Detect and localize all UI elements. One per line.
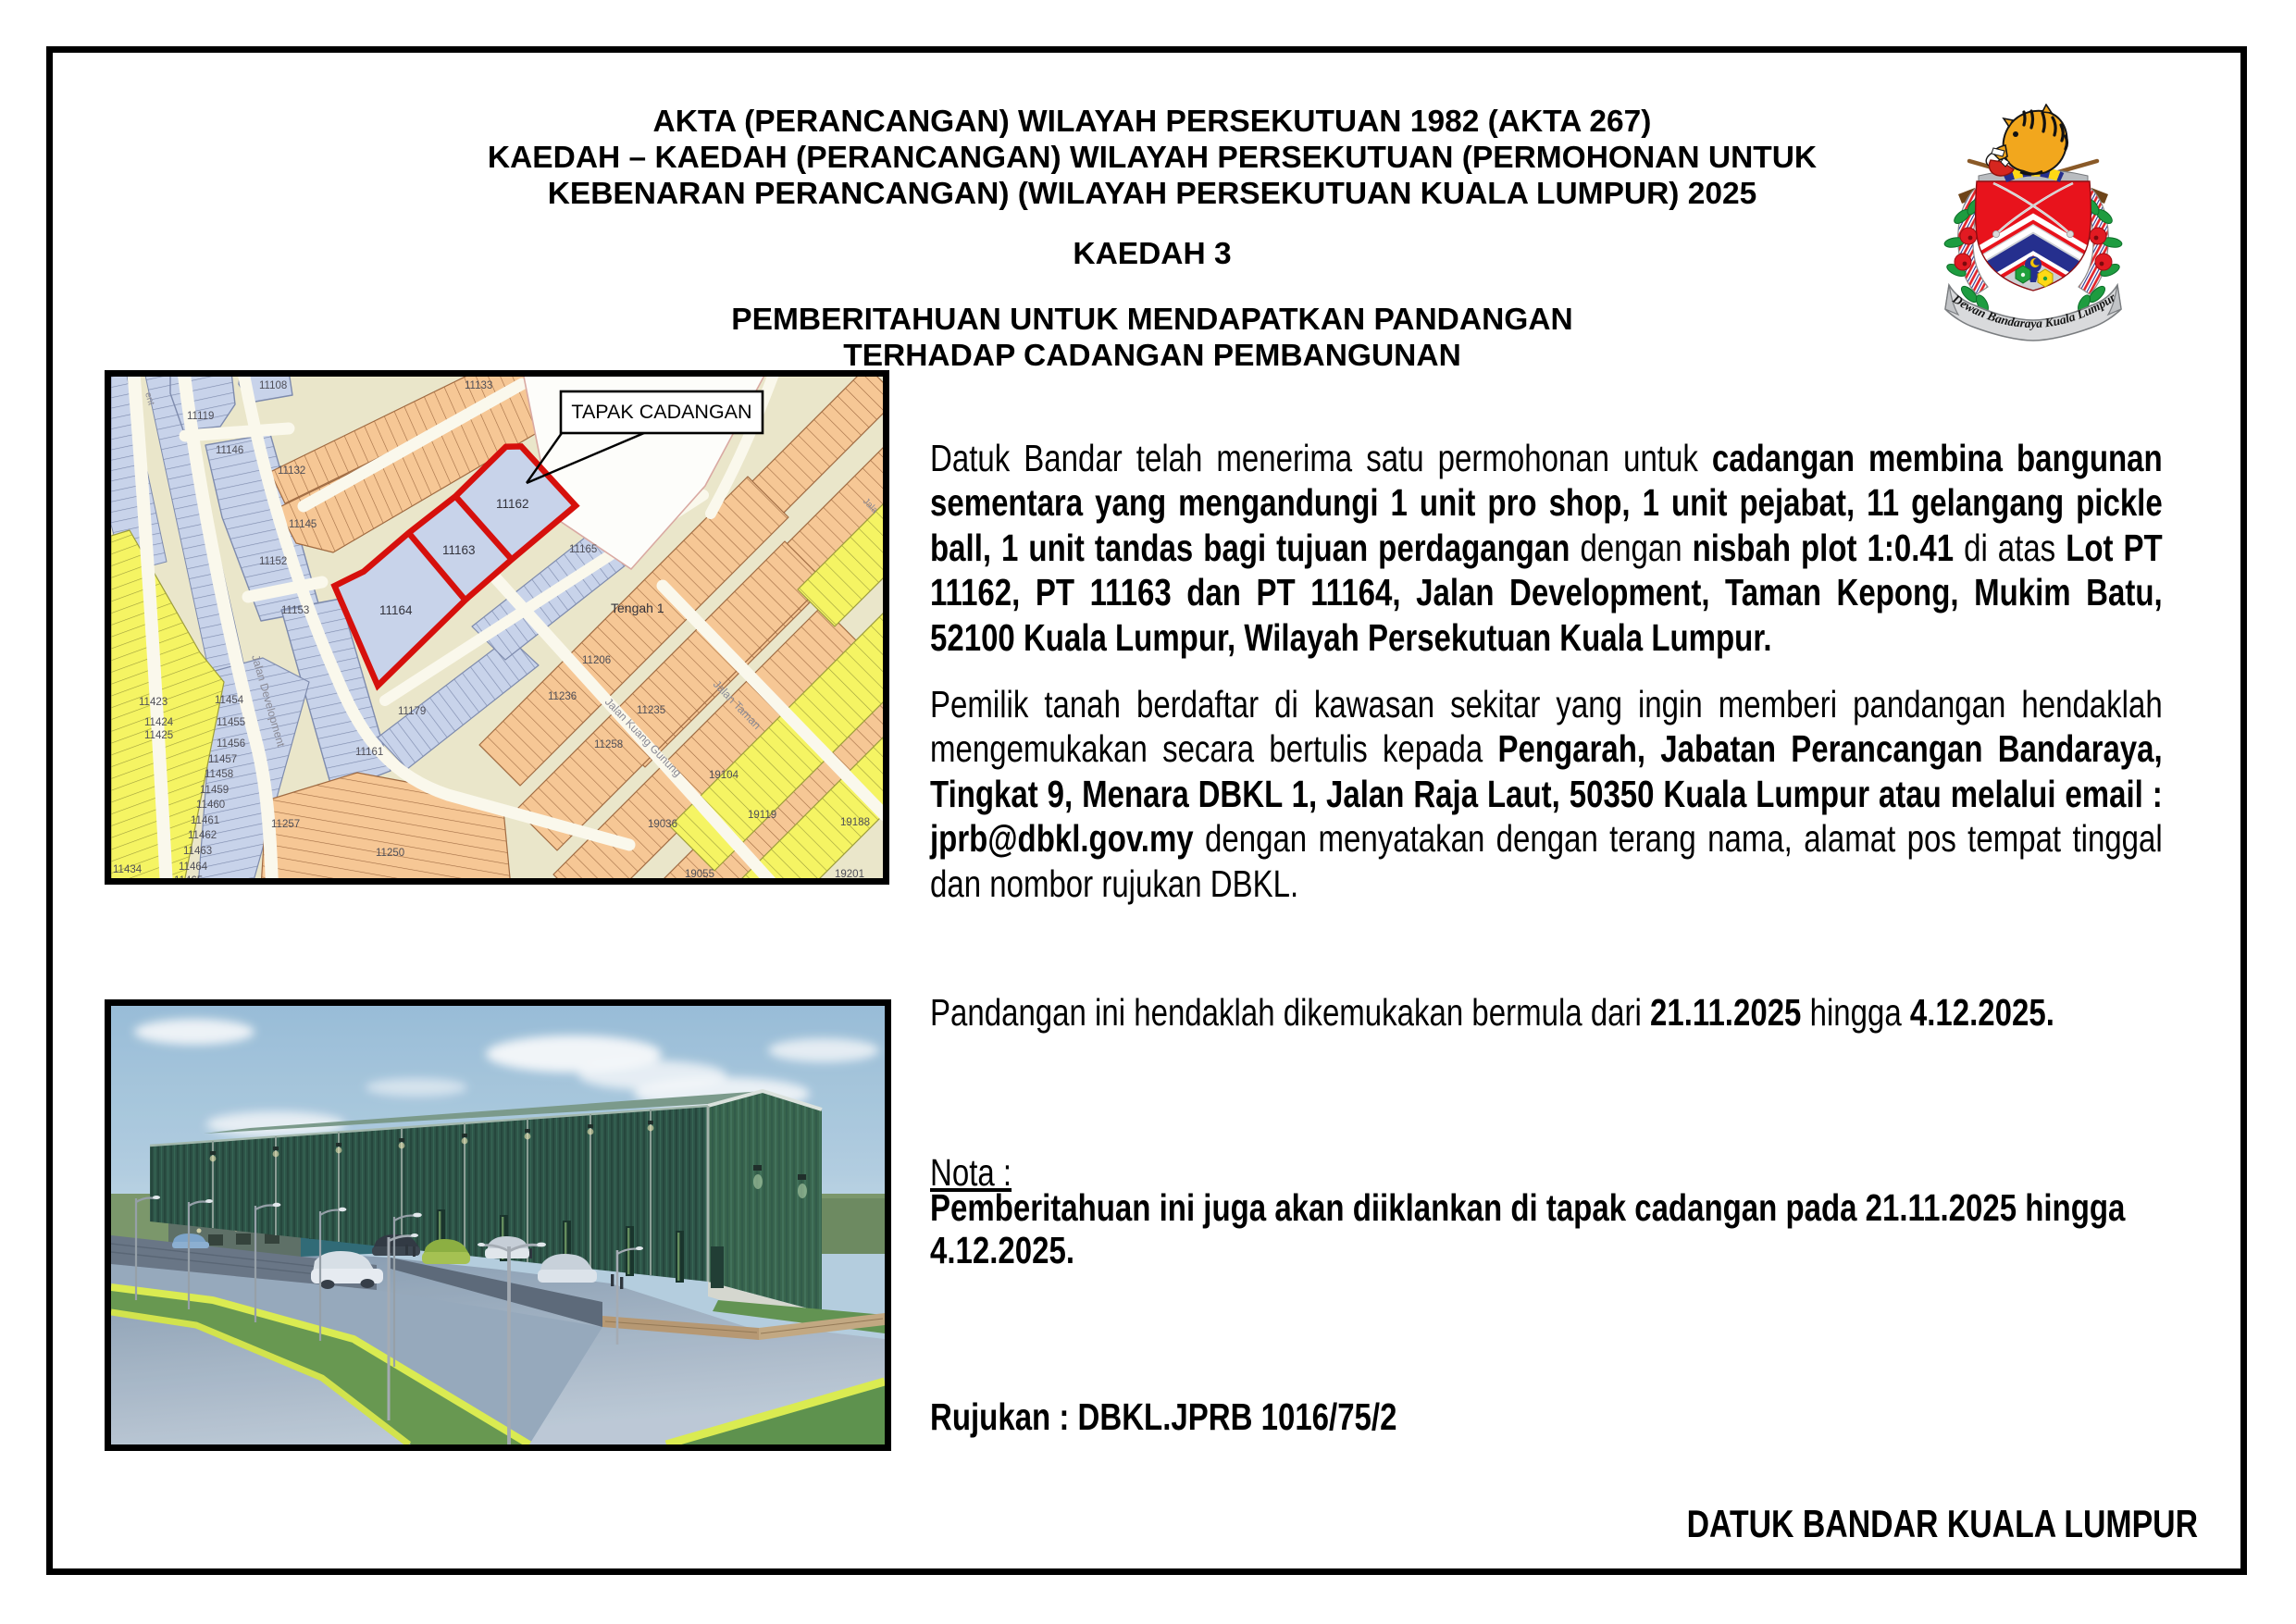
svg-text:19188: 19188 [840, 817, 870, 828]
svg-text:11434: 11434 [113, 864, 143, 875]
svg-text:11425: 11425 [144, 730, 173, 741]
svg-text:11454: 11454 [215, 695, 244, 706]
svg-text:11133: 11133 [465, 380, 492, 391]
svg-text:11461: 11461 [191, 815, 219, 826]
svg-text:11457: 11457 [208, 754, 237, 765]
svg-text:11236: 11236 [548, 691, 577, 702]
svg-text:11162: 11162 [496, 497, 529, 511]
svg-text:11455: 11455 [217, 717, 245, 728]
svg-text:19119: 19119 [748, 810, 776, 821]
svg-text:11108: 11108 [259, 380, 287, 391]
svg-text:11153: 11153 [281, 605, 309, 616]
svg-text:11146: 11146 [216, 445, 243, 456]
svg-text:11458: 11458 [205, 769, 233, 780]
svg-text:11163: 11163 [442, 543, 476, 557]
svg-text:11250: 11250 [376, 848, 404, 859]
svg-text:19055: 19055 [685, 869, 714, 878]
svg-text:11164: 11164 [379, 603, 413, 617]
svg-text:11165: 11165 [569, 544, 597, 555]
svg-text:11463: 11463 [183, 846, 212, 857]
svg-text:19104: 19104 [709, 770, 739, 781]
svg-text:11464: 11464 [179, 862, 208, 873]
svg-text:Tengah 1: Tengah 1 [611, 601, 664, 615]
svg-text:11206: 11206 [582, 655, 611, 666]
svg-text:11460: 11460 [196, 800, 225, 811]
svg-text:11423: 11423 [139, 697, 168, 708]
svg-text:11145: 11145 [289, 519, 316, 530]
svg-text:TAPAK CADANGAN: TAPAK CADANGAN [571, 401, 751, 423]
svg-text:11258: 11258 [594, 739, 623, 750]
svg-text:11459: 11459 [200, 785, 229, 796]
svg-text:11424: 11424 [144, 717, 174, 728]
svg-text:19036: 19036 [648, 819, 677, 830]
svg-text:11132: 11132 [278, 465, 305, 477]
svg-text:11462: 11462 [188, 830, 217, 841]
svg-text:19201: 19201 [835, 869, 864, 878]
svg-text:11456: 11456 [217, 738, 245, 750]
svg-text:11257: 11257 [271, 819, 300, 830]
svg-text:11465: 11465 [174, 875, 203, 878]
svg-text:11152: 11152 [259, 556, 287, 567]
svg-text:11235: 11235 [637, 705, 665, 716]
svg-text:11179: 11179 [398, 706, 426, 717]
svg-text:11161: 11161 [355, 747, 383, 758]
svg-text:11119: 11119 [187, 411, 214, 422]
